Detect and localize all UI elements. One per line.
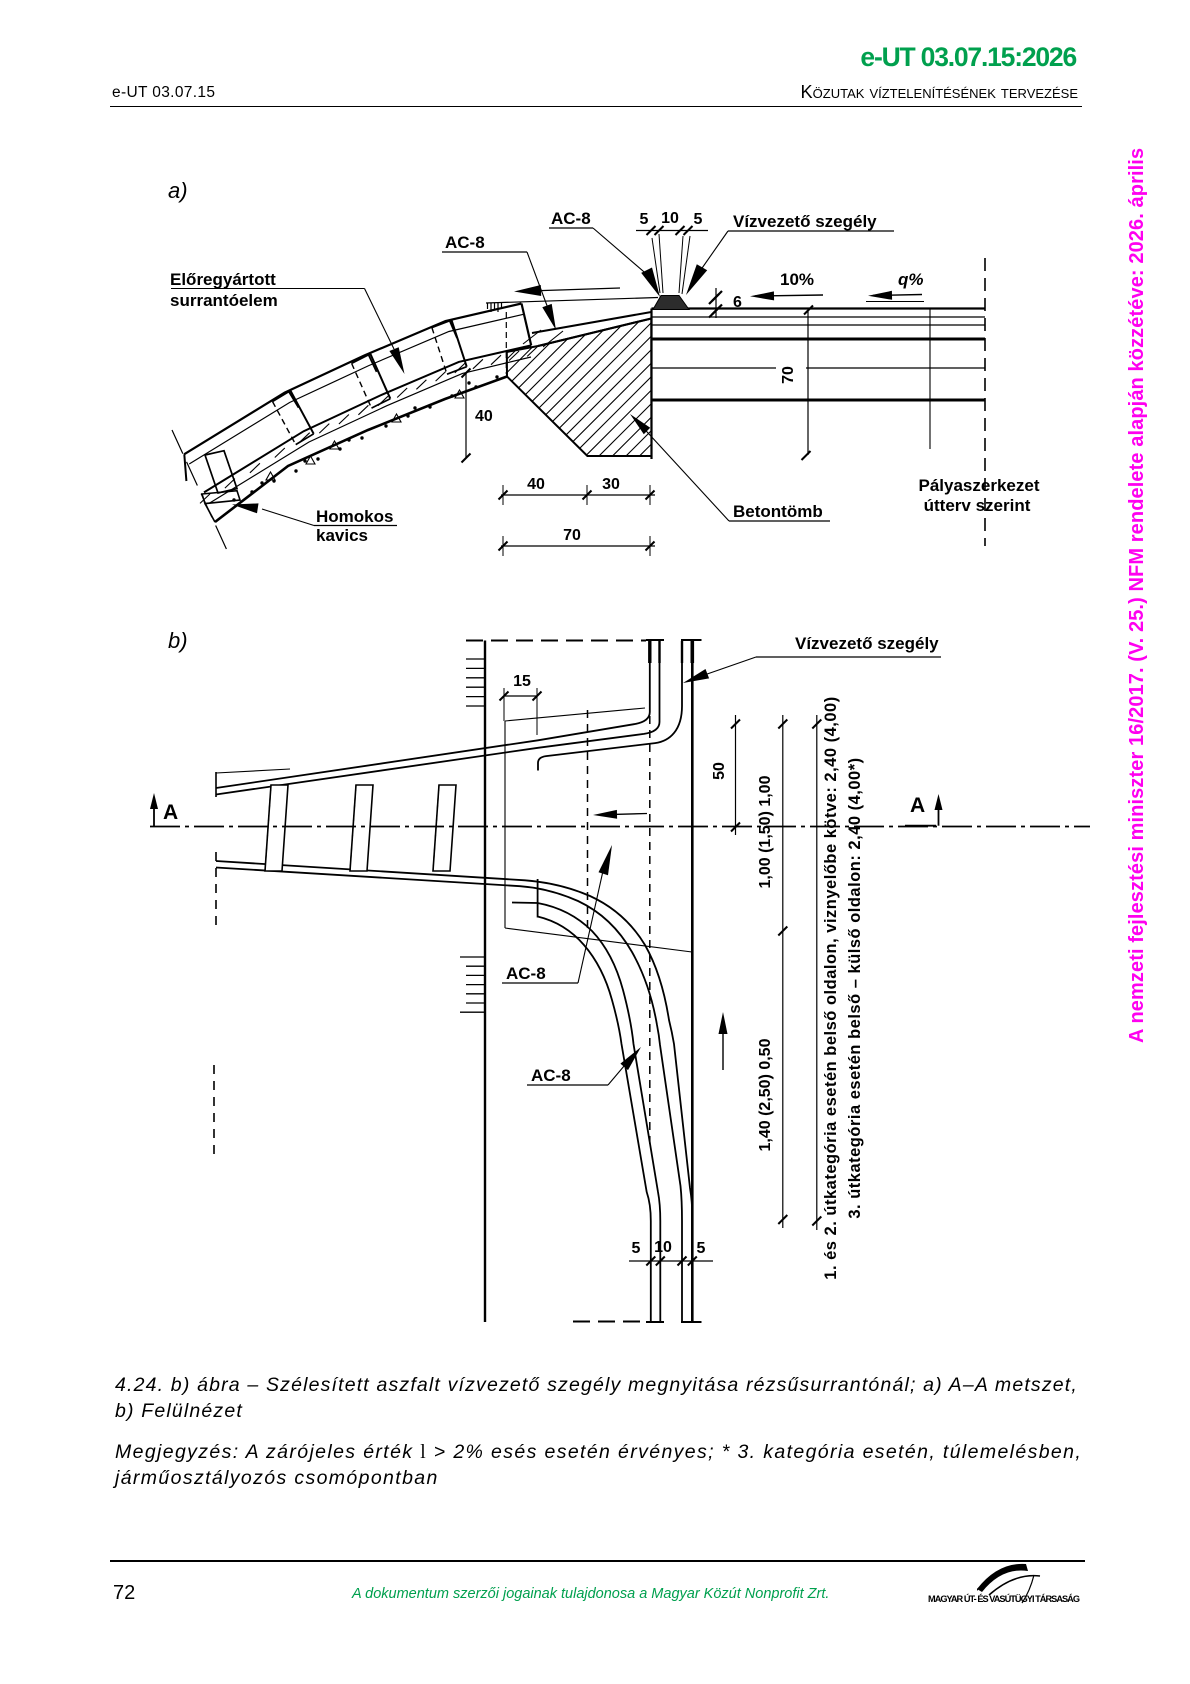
svg-text:A: A bbox=[163, 801, 178, 824]
svg-text:Homokos: Homokos bbox=[316, 507, 393, 526]
svg-text:útterv szerint: útterv szerint bbox=[924, 496, 1031, 515]
svg-text:Vízvezető szegély: Vízvezető szegély bbox=[795, 634, 939, 653]
svg-text:Vízvezető szegély: Vízvezető szegély bbox=[733, 212, 877, 231]
svg-text:50: 50 bbox=[711, 762, 728, 780]
svg-text:AC-8: AC-8 bbox=[551, 209, 591, 228]
svg-text:AC-8: AC-8 bbox=[506, 964, 546, 983]
svg-text:Betontömb: Betontömb bbox=[733, 502, 823, 521]
svg-text:10%: 10% bbox=[780, 270, 814, 289]
svg-text:q%: q% bbox=[898, 270, 924, 289]
svg-text:MAGYAR ÚT- ÉS VASÚTÜGYI TÁRSAS: MAGYAR ÚT- ÉS VASÚTÜGYI TÁRSASÁG bbox=[928, 1593, 1080, 1604]
svg-text:5: 5 bbox=[632, 1240, 641, 1257]
svg-text:AC-8: AC-8 bbox=[445, 233, 485, 252]
svg-text:Pályaszerkezet: Pályaszerkezet bbox=[919, 476, 1040, 495]
svg-text:5: 5 bbox=[694, 211, 703, 228]
svg-text:1,00 (1,50) 1,00: 1,00 (1,50) 1,00 bbox=[757, 775, 774, 888]
svg-text:30: 30 bbox=[602, 476, 620, 493]
svg-text:10: 10 bbox=[654, 1239, 672, 1256]
svg-text:surrantóelem: surrantóelem bbox=[170, 291, 278, 310]
svg-text:A: A bbox=[910, 794, 925, 817]
svg-text:40: 40 bbox=[527, 476, 545, 493]
svg-text:a): a) bbox=[168, 178, 188, 203]
svg-text:15: 15 bbox=[513, 673, 531, 690]
svg-text:kavics: kavics bbox=[316, 526, 368, 545]
svg-text:70: 70 bbox=[780, 366, 797, 384]
svg-text:5: 5 bbox=[640, 211, 649, 228]
svg-text:10: 10 bbox=[661, 210, 679, 227]
svg-text:3. útkategória esetén belső –: 3. útkategória esetén belső – külső olda… bbox=[846, 757, 864, 1218]
svg-text:AC-8: AC-8 bbox=[531, 1066, 571, 1085]
svg-text:40: 40 bbox=[475, 408, 493, 425]
svg-text:b): b) bbox=[168, 628, 188, 653]
svg-text:6: 6 bbox=[733, 294, 742, 311]
svg-text:1. és 2. útkategória esetén be: 1. és 2. útkategória esetén belső oldalo… bbox=[822, 696, 840, 1279]
svg-text:1,40 (2,50) 0,50: 1,40 (2,50) 0,50 bbox=[757, 1038, 774, 1151]
svg-text:70: 70 bbox=[563, 527, 581, 544]
svg-text:Előregyártott: Előregyártott bbox=[170, 270, 276, 289]
svg-text:5: 5 bbox=[697, 1240, 706, 1257]
